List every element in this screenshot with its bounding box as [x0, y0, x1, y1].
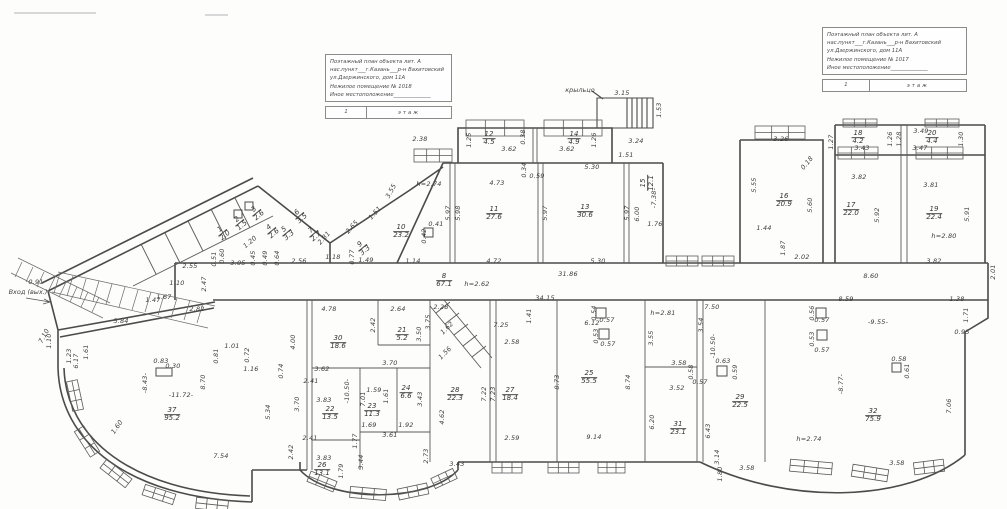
floor-word: этаж: [367, 110, 451, 116]
dimension-label: 5.34: [264, 404, 272, 419]
room-label: 2555.5: [581, 370, 597, 386]
dimension-label: 1.61: [82, 344, 90, 359]
dimension-label: 3.82: [851, 173, 866, 181]
room-area: 22.5: [732, 403, 748, 410]
dimension-label: 0.59: [529, 172, 544, 180]
dimension-label: 2.41: [302, 434, 317, 442]
room-label: 1922.4: [926, 206, 942, 222]
title-line: Нежилое помещение № 1018: [330, 83, 447, 91]
room-label: 1512.1: [640, 175, 656, 191]
dimension-label: 1.41: [525, 308, 533, 323]
dimension-label: 0.64: [273, 250, 281, 265]
dimension-label: 2.41: [303, 377, 318, 385]
dimension-label: 7.06: [945, 398, 953, 413]
room-area: 22.4: [926, 215, 942, 222]
dimension-label: 0.57: [599, 316, 614, 324]
title-line: ул.Дзержинского, дом 11А: [330, 74, 447, 82]
room-area: 13.5: [322, 415, 338, 422]
room-area: 22.0: [843, 211, 859, 218]
title-line: ул.Дзержинского, дом 11А: [827, 47, 962, 55]
dimension-label: 3.83: [316, 396, 331, 404]
dimension-label: 2.02: [794, 253, 809, 261]
room-area: 22.3: [447, 396, 463, 403]
dimension-label: -8.43-: [141, 373, 149, 393]
dimension-label: 3.70: [293, 396, 301, 411]
dimension-label: 7.25: [493, 321, 508, 329]
dimension-label: 1.47: [145, 296, 160, 304]
dimension-label: 5.84: [113, 317, 128, 325]
room-label: 867.1: [436, 273, 452, 289]
dimension-label: 1.25: [465, 132, 473, 147]
dimension-label: 3.55: [647, 330, 655, 345]
room-area: 95.2: [164, 416, 180, 423]
dimension-label: 3.58: [671, 359, 686, 367]
title-line: Нежилое помещение № 1017: [827, 56, 962, 64]
dimension-label: 6.43: [704, 423, 712, 438]
room-label: 3018.6: [330, 335, 346, 351]
dimension-label: 7.22: [480, 386, 488, 401]
dimension-label: 1.49: [358, 256, 373, 264]
dimension-label: 3.82: [926, 257, 941, 265]
dimension-label: 0.81: [212, 348, 220, 363]
dimension-label: 4.62: [438, 409, 446, 424]
room-area: 23.2: [393, 233, 409, 240]
room-label: 3123.1: [670, 421, 686, 437]
dimension-label: 1.10: [169, 279, 184, 287]
dimension-label: 1.59: [366, 386, 381, 394]
dimension-label: 1.77: [351, 433, 359, 448]
title-line: Поэтажный план объекта лит. А: [827, 31, 962, 39]
dimension-label: 0.38: [519, 129, 527, 144]
dimension-label: 0.95: [954, 328, 969, 336]
dimension-label: 5.30: [584, 163, 599, 171]
dimension-label: h=2.74: [796, 435, 821, 443]
dimension-label: 3.62: [314, 365, 329, 373]
dimension-label: 2.73: [422, 448, 430, 463]
room-label: 2613.1: [314, 462, 330, 478]
dimension-label: 3.81: [923, 181, 938, 189]
dimension-label: 0.74: [277, 363, 285, 378]
dimension-label: 0.57: [814, 346, 829, 354]
dimension-label: 0.72: [243, 347, 251, 362]
dimension-label: 1.80: [716, 466, 724, 481]
dimension-label: 8.70: [199, 374, 207, 389]
title-block-right-text: Поэтажный план объекта лит. А нас.пункт_…: [822, 27, 967, 75]
room-label: 2311.3: [364, 403, 380, 419]
room-label: 124.5: [483, 131, 496, 147]
dimension-label: 2.82: [189, 305, 204, 313]
dimension-label: 6.20: [648, 414, 656, 429]
dimension-label: 3.43: [449, 460, 464, 468]
dimension-label: 4.72: [486, 257, 501, 265]
room-label: 3275.9: [865, 408, 881, 424]
dimension-label: h=2.74: [416, 180, 441, 188]
entrance-arrow-icon: [26, 298, 50, 304]
dimension-label: 34.15: [535, 294, 555, 302]
outer-walls: [42, 125, 988, 502]
room-label: 2922.5: [732, 394, 748, 410]
title-block-left-text: Поэтажный план объекта лит. А нас.пункт_…: [325, 54, 452, 102]
dimension-label: h=2.80: [931, 232, 956, 240]
dimension-label: 3.26: [773, 135, 788, 143]
dimension-label: 1.38: [949, 295, 964, 303]
dimension-label: 1.28: [895, 131, 903, 146]
dimension-label: 3.44: [357, 454, 365, 469]
floor-number: 1: [326, 107, 367, 118]
title-line: Иное местоположение______________: [330, 91, 447, 99]
dimension-label: 1.53: [655, 102, 663, 117]
floor-number: 1: [823, 80, 870, 91]
dimension-label: 3.70: [382, 359, 397, 367]
dimension-label: 6.00: [633, 206, 641, 221]
title-block-left: Поэтажный план объекта лит. А нас.пункт_…: [325, 54, 452, 119]
title-line: Иное местоположение______________: [827, 64, 962, 72]
dimension-label: h=2.81: [650, 309, 675, 317]
dimension-label: 0.57: [814, 316, 829, 324]
dimension-label: 1.44: [756, 224, 771, 232]
dimension-label: 0.59: [731, 364, 739, 379]
dimension-label: -9.55-: [868, 318, 888, 326]
dimension-label: 1.10: [45, 333, 53, 348]
title-line: нас.пункт___г.Казань___р-н Вахитовский: [330, 66, 447, 74]
dimension-label: 1.69: [361, 421, 376, 429]
dimension-label: 3.14: [713, 449, 721, 464]
annotation-label: Вход (вых.): [9, 288, 48, 296]
floor-label: 1 этаж: [325, 106, 452, 119]
dimension-label: 4.78: [321, 305, 336, 313]
dimension-label: 0.57: [692, 378, 707, 386]
dimension-label: 31.86: [558, 270, 578, 278]
room-label: 1127.6: [486, 206, 502, 222]
dimension-label: 5.97: [623, 205, 631, 220]
room-label: 1023.2: [393, 224, 409, 240]
dimension-label: 3.24: [628, 137, 643, 145]
dimension-label: 2.47: [200, 276, 208, 291]
dimension-label: 1.92: [398, 421, 413, 429]
room-area: 30.6: [577, 213, 593, 220]
dimension-label: 1.61: [382, 388, 390, 403]
dimension-label: 0.58: [891, 355, 906, 363]
dimension-label: -7.38-: [650, 188, 658, 208]
dimension-label: 2.58: [504, 338, 519, 346]
dimension-label: 3.05: [230, 259, 245, 267]
dimension-label: 0.53: [808, 331, 816, 346]
dimension-label: 3.43: [416, 391, 424, 406]
room-label: 2718.4: [502, 387, 518, 403]
room-area: 4.5: [483, 140, 496, 147]
dimension-label: 1.87: [779, 240, 787, 255]
room-area: 4.2: [852, 139, 865, 146]
room-label: 1330.6: [577, 204, 593, 220]
dimension-label: 9.14: [586, 433, 601, 441]
dimension-label: 5.97: [541, 205, 549, 220]
room-area: 12.1: [649, 175, 656, 191]
room-area: 20.9: [776, 202, 792, 209]
dimension-label: -8.77-: [837, 374, 845, 394]
dimension-label: 1.14: [405, 257, 420, 265]
dimension-label: 0.60: [218, 248, 226, 263]
dimension-label: 1.27: [827, 134, 835, 149]
room-area: 18.6: [330, 344, 346, 351]
dimension-label: 3.62: [501, 145, 516, 153]
dimension-label: 3.50: [415, 326, 423, 341]
dimension-label: 5.55: [750, 177, 758, 192]
floor-plan: Поэтажный план объекта лит. А нас.пункт_…: [0, 0, 1007, 509]
room-area: 75.9: [865, 417, 881, 424]
dimension-label: 0.53: [592, 328, 600, 343]
dimension-label: 3.15: [614, 89, 629, 97]
dimension-label: 7.54: [213, 452, 228, 460]
dimension-label: 5.60: [806, 197, 814, 212]
dimension-label: 8.74: [624, 374, 632, 389]
dimension-label: 3.54: [697, 317, 705, 332]
room-area: 27.6: [486, 215, 502, 222]
room-area: 18.4: [502, 396, 518, 403]
room-label: 3795.2: [164, 407, 180, 423]
dimension-label: 0.54: [590, 305, 598, 320]
dimension-label: 4.73: [489, 179, 504, 187]
dimension-label: -11.72-: [169, 391, 194, 399]
room-area: 55.5: [581, 379, 597, 386]
dimension-label: 1.18: [325, 253, 340, 261]
dimension-label: 0.41: [428, 220, 443, 228]
dimension-label: 0.49: [261, 250, 269, 265]
room-label: 184.2: [852, 130, 865, 146]
dimension-label: 3.58: [739, 464, 754, 472]
dimension-label: 8.73: [553, 374, 561, 389]
window-sills: [67, 119, 963, 509]
room-area: 23.1: [670, 430, 686, 437]
floor-word: этаж: [870, 83, 966, 89]
room-area: 11.3: [364, 412, 380, 419]
room-label: 2822.3: [447, 387, 463, 403]
room-area: 67.1: [436, 282, 452, 289]
dimension-label: 7.23: [489, 386, 497, 401]
dimension-label: 1.26: [590, 132, 598, 147]
dimension-label: 1.26: [886, 131, 894, 146]
room-area: 6.6: [400, 394, 413, 401]
room-area: 5.2: [396, 336, 409, 343]
room-label: 246.6: [400, 385, 413, 401]
dimension-label: 2.59: [504, 434, 519, 442]
annotation-label: крыльцо: [565, 86, 595, 94]
room-label: 215.2: [396, 327, 409, 343]
dimension-label: 0.30: [165, 362, 180, 370]
dimension-label: 1.71: [962, 307, 970, 322]
dimension-label: 2.55: [182, 262, 197, 270]
dimension-label: 7.50: [704, 303, 719, 311]
room-area: 4.9: [568, 140, 581, 147]
dimension-label: h=2.62: [464, 280, 489, 288]
title-block-right: Поэтажный план объекта лит. А нас.пункт_…: [822, 27, 967, 92]
dimension-label: 2.38: [412, 135, 427, 143]
room-label: 2213.5: [322, 406, 338, 422]
dimension-label: 3.58: [889, 459, 904, 467]
room-label: 204.4: [926, 130, 939, 146]
dimension-label: 1.30: [957, 131, 965, 146]
title-line: Поэтажный план объекта лит. А: [330, 58, 447, 66]
dimension-label: 0.77: [348, 249, 356, 264]
dimension-label: 2.42: [287, 444, 295, 459]
dimension-label: 0.45: [249, 250, 257, 265]
dimension-label: 1.79: [337, 463, 345, 478]
dimension-label: 0.34: [520, 162, 528, 177]
dimension-label: 5.98: [454, 205, 462, 220]
room-area: 4.4: [926, 139, 939, 146]
room-label: 1620.9: [776, 193, 792, 209]
dimension-label: 2.64: [390, 305, 405, 313]
dimension-label: 1.51: [618, 151, 633, 159]
dimension-label: 5.91: [963, 206, 971, 221]
dimension-label: 3.75: [424, 314, 432, 329]
room-label: 1722.0: [843, 202, 859, 218]
floor-label: 1 этаж: [822, 79, 967, 92]
dimension-label: 0.63: [715, 357, 730, 365]
dimension-label: 2.01: [989, 264, 997, 279]
dimension-label: 2.42: [369, 317, 377, 332]
room-label: 144.9: [568, 131, 581, 147]
dimension-label: -10.50-: [343, 379, 351, 404]
dimension-label: 3.61: [382, 431, 397, 439]
dimension-label: 2.28: [433, 303, 448, 311]
dimension-label: 2.56: [291, 257, 306, 265]
dimension-label: 5.97: [444, 205, 452, 220]
dimension-label: 1.76: [647, 220, 662, 228]
dimension-label: 5.92: [873, 207, 881, 222]
dimension-label: -10.50-: [709, 334, 717, 359]
dimension-label: 0.57: [600, 340, 615, 348]
dimension-label: 1.01: [224, 342, 239, 350]
dimension-label: 0.51: [210, 251, 218, 266]
dimension-label: 6.17: [72, 353, 80, 368]
dimension-label: 3.52: [669, 384, 684, 392]
dimension-label: 0.91: [28, 278, 43, 286]
dimension-label: 1.16: [243, 365, 258, 373]
dimension-label: 0.42: [420, 228, 428, 243]
dimension-label: 0.61: [903, 363, 911, 378]
room-area: 13.1: [314, 471, 330, 478]
dimension-label: 5.30: [590, 257, 605, 265]
title-line: нас.пункт___г.Казань___р-н Вахитовский: [827, 39, 962, 47]
dimension-label: 4.00: [289, 334, 297, 349]
dimension-label: 8.59: [838, 295, 853, 303]
dimension-label: 8.60: [863, 272, 878, 280]
